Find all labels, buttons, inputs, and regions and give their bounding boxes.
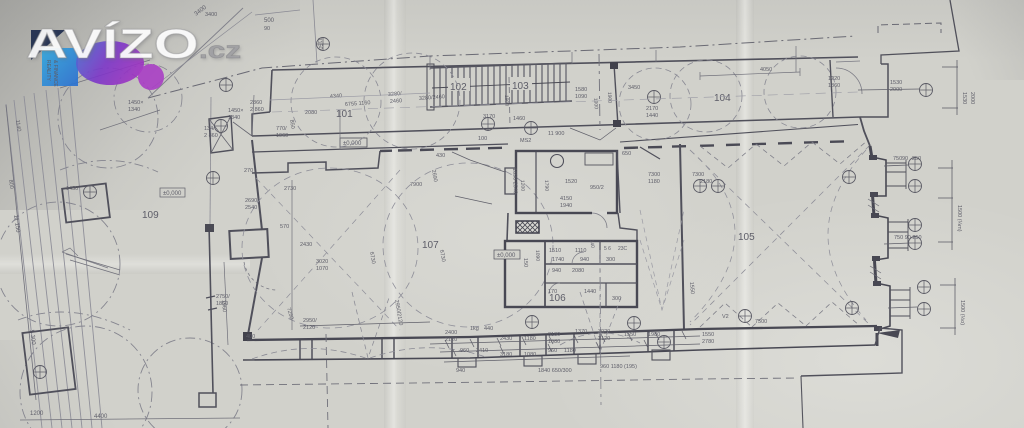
svg-text:4400: 4400: [94, 414, 108, 420]
svg-text:2690/: 2690/: [245, 198, 259, 204]
svg-text:102: 102: [450, 82, 467, 93]
svg-text:1110: 1110: [575, 248, 586, 254]
svg-text:23C: 23C: [618, 246, 628, 252]
svg-text:MS2: MS2: [520, 138, 531, 144]
svg-text:4150: 4150: [560, 196, 572, 202]
svg-text:2080: 2080: [572, 268, 584, 274]
svg-text:2430: 2430: [500, 336, 512, 342]
svg-text:5 6: 5 6: [604, 246, 611, 252]
svg-text:1080: 1080: [548, 339, 560, 345]
svg-text:±0,000: ±0,000: [497, 253, 516, 259]
svg-text:1690 2540: 1690 2540: [511, 168, 518, 194]
svg-text:11 150: 11 150: [12, 214, 21, 233]
svg-text:V2: V2: [722, 314, 729, 320]
svg-text:107: 107: [422, 240, 439, 251]
svg-text:2460: 2460: [390, 98, 403, 105]
svg-text:940: 940: [552, 268, 561, 274]
svg-text:1500 (¼m): 1500 (¼m): [956, 205, 962, 232]
svg-text:440: 440: [484, 326, 493, 332]
svg-text:90: 90: [902, 156, 908, 162]
svg-text:940: 940: [456, 368, 465, 374]
svg-text:1550: 1550: [688, 282, 695, 295]
svg-text:2400: 2400: [445, 330, 457, 336]
svg-text:2950/2120: 2950/2120: [393, 299, 403, 326]
svg-text:2170: 2170: [646, 106, 658, 112]
svg-text:3450: 3450: [628, 85, 640, 91]
svg-text:1180: 1180: [524, 336, 536, 342]
svg-text:2430: 2430: [300, 242, 312, 248]
svg-text:2000: 2000: [890, 87, 902, 93]
svg-text:90: 90: [264, 26, 270, 32]
svg-text:300: 300: [606, 257, 615, 263]
svg-text:430: 430: [436, 153, 445, 159]
svg-text:3170: 3170: [483, 114, 495, 120]
svg-text:6730: 6730: [438, 249, 446, 262]
svg-text:103: 103: [512, 81, 529, 92]
svg-text:2000: 2000: [969, 92, 975, 104]
svg-text:1500 (½o): 1500 (½o): [959, 300, 966, 325]
svg-text:750 90 250: 750 90 250: [894, 235, 922, 241]
svg-text:7250: 7250: [285, 307, 294, 320]
svg-text:6755 1160: 6755 1160: [345, 100, 371, 108]
svg-text:7900: 7900: [410, 182, 422, 188]
svg-text:960: 960: [460, 348, 469, 354]
svg-text:1960: 1960: [276, 133, 288, 139]
svg-text:7300: 7300: [648, 172, 660, 178]
svg-text:650: 650: [622, 151, 631, 157]
svg-text:1090: 1090: [534, 250, 540, 262]
svg-text:105: 105: [738, 232, 755, 243]
svg-text:2750/: 2750/: [216, 294, 230, 300]
svg-text:1900: 1900: [592, 98, 599, 110]
svg-text:950/2: 950/2: [590, 185, 604, 191]
svg-text:300: 300: [612, 296, 621, 302]
svg-text:1510: 1510: [549, 248, 561, 254]
svg-text:500: 500: [264, 18, 275, 24]
svg-text:2860: 2860: [250, 100, 262, 106]
svg-text:2120: 2120: [445, 337, 457, 343]
svg-text:960 1180 (195): 960 1180 (195): [600, 364, 637, 370]
svg-text:400: 400: [246, 334, 255, 340]
svg-text:±0,000: ±0,000: [163, 191, 182, 197]
svg-text:1180: 1180: [648, 179, 660, 185]
svg-text:1980: 1980: [648, 332, 660, 338]
svg-text:2780: 2780: [702, 339, 714, 345]
svg-text:770/: 770/: [276, 126, 287, 132]
svg-text:1580: 1580: [575, 87, 587, 93]
svg-text:1440: 1440: [584, 289, 596, 295]
svg-text:1860: 1860: [828, 83, 840, 89]
svg-text:270: 270: [244, 168, 253, 174]
svg-text:11 900: 11 900: [548, 131, 564, 137]
svg-text:1520: 1520: [565, 179, 577, 185]
svg-text:1200: 1200: [519, 180, 525, 192]
svg-text:7300: 7300: [692, 172, 704, 178]
svg-text:1460: 1460: [513, 116, 525, 122]
svg-text:4050: 4050: [760, 67, 772, 73]
svg-text:101: 101: [336, 109, 353, 120]
svg-text:100: 100: [478, 136, 487, 142]
svg-text:1220: 1220: [828, 76, 840, 82]
svg-text:140: 140: [588, 239, 595, 248]
svg-text:1840 650/300: 1840 650/300: [538, 368, 572, 374]
svg-text:1550: 1550: [702, 332, 714, 338]
svg-text:1080: 1080: [524, 352, 536, 358]
svg-text:940: 940: [580, 257, 589, 263]
svg-text:3020: 3020: [316, 259, 328, 265]
svg-text:1860: 1860: [216, 301, 228, 307]
svg-text:1900: 1900: [503, 95, 509, 107]
svg-text:1790: 1790: [543, 180, 549, 192]
svg-text:1090: 1090: [575, 94, 587, 100]
svg-text:1kg: 1kg: [470, 326, 479, 332]
svg-text:1340: 1340: [228, 115, 240, 121]
svg-text:250: 250: [912, 156, 921, 162]
svg-text:7500: 7500: [755, 319, 767, 325]
svg-text:3400: 3400: [205, 12, 217, 18]
svg-text:2120: 2120: [598, 336, 610, 342]
svg-text:170: 170: [548, 289, 557, 295]
svg-text:850: 850: [288, 119, 296, 129]
svg-text:1900: 1900: [606, 92, 612, 104]
svg-text:1180: 1180: [564, 348, 576, 354]
svg-text:2690: 2690: [430, 169, 438, 182]
svg-text:1150: 1150: [316, 38, 323, 50]
svg-text:1940: 1940: [560, 203, 572, 209]
svg-text:1200: 1200: [30, 411, 44, 417]
svg-text:104: 104: [714, 93, 731, 104]
svg-text:3180: 3180: [500, 352, 512, 358]
svg-text:1550: 1550: [624, 332, 636, 338]
svg-text:2950/: 2950/: [303, 318, 317, 324]
svg-text:1450×: 1450×: [228, 108, 243, 114]
svg-text:1530: 1530: [890, 80, 902, 86]
svg-text:2 860: 2 860: [250, 107, 264, 113]
svg-text:960: 960: [548, 348, 557, 354]
svg-text:2730: 2730: [284, 186, 296, 192]
svg-text:2410: 2410: [476, 348, 488, 354]
svg-text:2120: 2120: [303, 325, 315, 331]
svg-text:800: 800: [7, 179, 14, 189]
svg-text:1440: 1440: [646, 113, 658, 119]
svg-text:150: 150: [522, 258, 528, 267]
svg-text:3020: 3020: [598, 329, 610, 335]
svg-text:1740: 1740: [552, 257, 564, 263]
svg-text:3280/2460: 3280/2460: [419, 94, 445, 102]
svg-text:570: 570: [280, 224, 289, 230]
svg-text:6730: 6730: [368, 251, 376, 264]
svg-text:1530: 1530: [961, 92, 967, 104]
svg-text:1370: 1370: [575, 329, 587, 335]
svg-text:750: 750: [893, 156, 902, 162]
svg-text:3180: 3180: [548, 332, 560, 338]
svg-text:2180: 2180: [700, 179, 712, 185]
svg-text:2540: 2540: [245, 205, 257, 211]
svg-text:1070: 1070: [316, 266, 328, 272]
svg-text:109: 109: [142, 210, 159, 221]
svg-text:1450: 1450: [66, 186, 78, 192]
